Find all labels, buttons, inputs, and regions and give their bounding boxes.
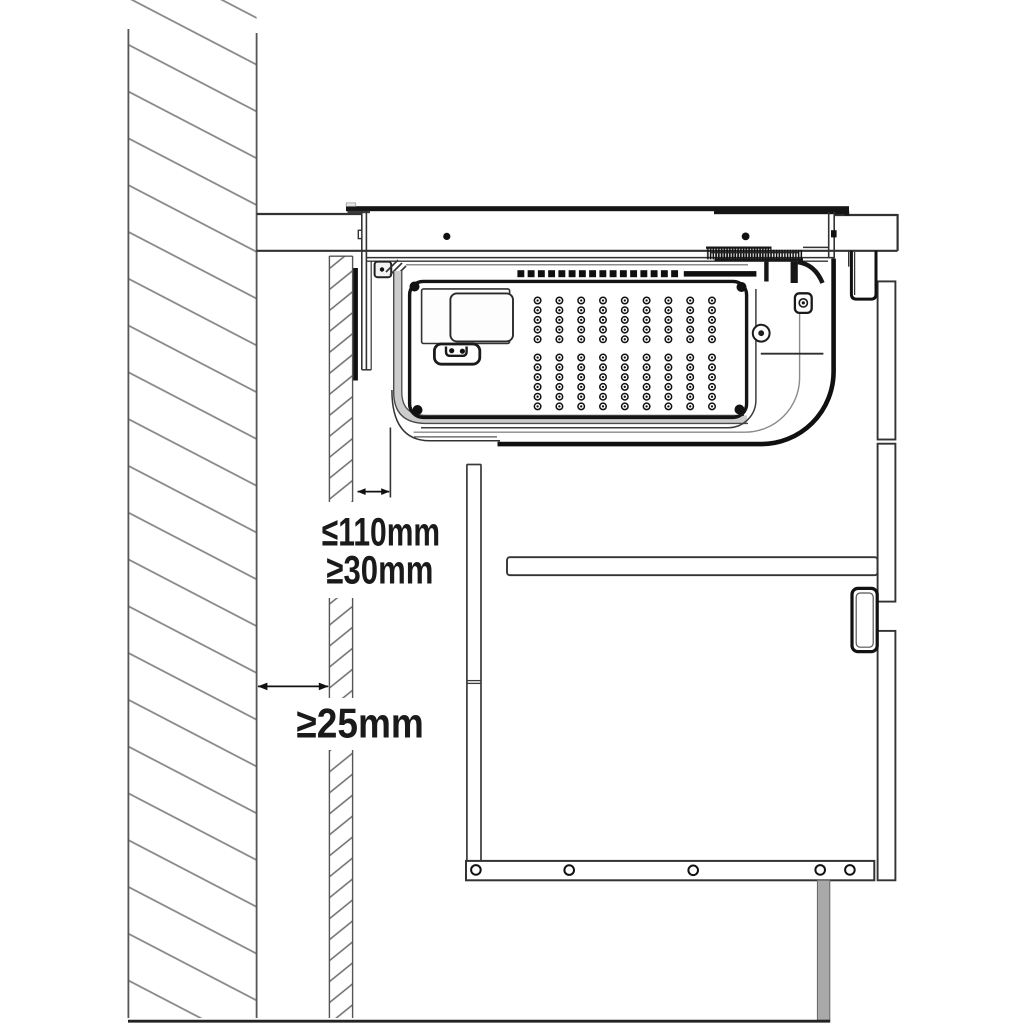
svg-text:≥30mm: ≥30mm: [326, 548, 433, 593]
svg-text:≥25mm: ≥25mm: [296, 701, 423, 747]
